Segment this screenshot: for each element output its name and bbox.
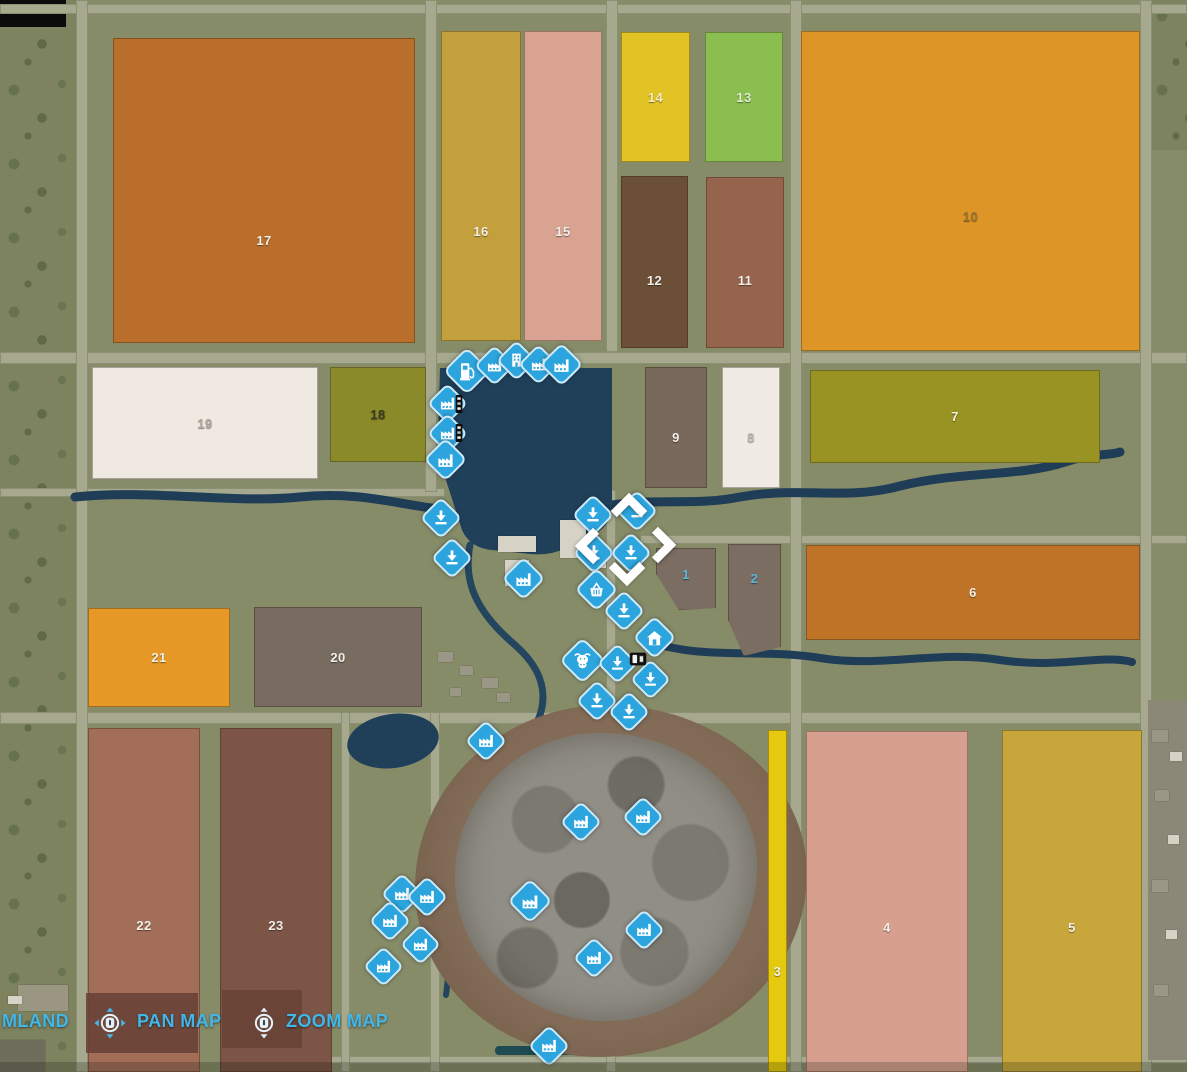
zoom-map-label: ZOOM MAP [286,1011,388,1032]
player-vehicle-icon[interactable] [625,648,651,670]
pan-cursor-right-chevron [650,524,677,566]
game-map[interactable]: 1716151413121110191898712621202223345 ML… [0,0,1187,1072]
pan-cursor-left-chevron [574,525,601,567]
pan-map-label: PAN MAP [137,1011,221,1032]
farmland-label: MLAND [2,1011,69,1032]
parked-vehicle-icon[interactable] [454,422,464,444]
map-bottom-shade [0,1062,1187,1072]
gamepad-right-stick-icon [247,1006,281,1040]
pan-cursor-up-chevron [608,492,650,519]
pan-cursor-down-chevron [606,560,648,587]
gamepad-left-stick-icon [93,1006,127,1040]
parked-vehicle-icon[interactable] [454,393,464,415]
